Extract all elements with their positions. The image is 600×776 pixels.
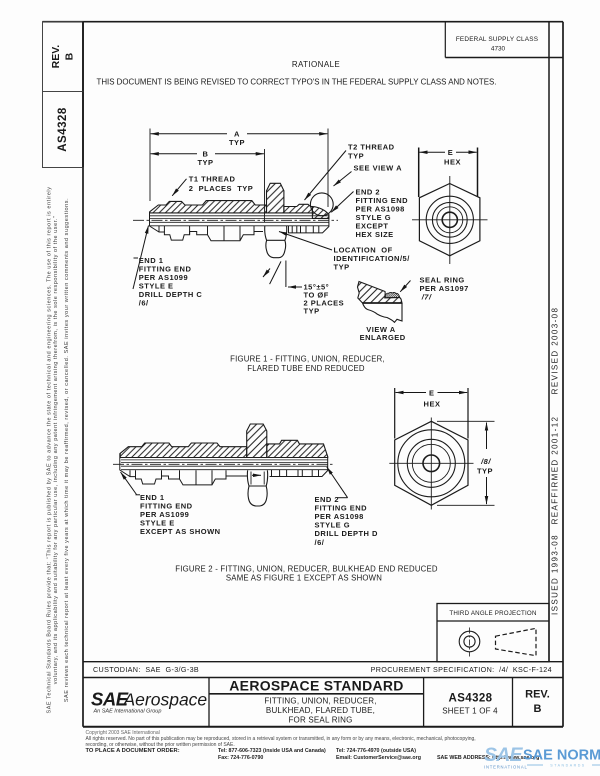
svg-text:REV.: REV.	[50, 45, 62, 69]
svg-text:Email: CustomerService@sae.org: Email: CustomerService@sae.org	[336, 755, 421, 761]
svg-text:ISSUED 1993-08: ISSUED 1993-08	[550, 534, 559, 615]
svg-text:FIGURE 1 - FITTING, UNION, RED: FIGURE 1 - FITTING, UNION, REDUCER,	[230, 354, 385, 363]
svg-text:TYP: TYP	[304, 307, 320, 316]
svg-text:/6/: /6/	[139, 298, 149, 307]
svg-text:2 PLACES TYP: 2 PLACES TYP	[189, 184, 254, 193]
svg-text:HEX: HEX	[424, 399, 441, 408]
svg-text:THIRD ANGLE PROJECTION: THIRD ANGLE PROJECTION	[449, 610, 536, 617]
svg-text:/6/: /6/	[315, 538, 325, 547]
svg-text:Copyright 2003 SAE Internation: Copyright 2003 SAE International	[86, 730, 160, 736]
svg-text:SHEET 1 OF 4: SHEET 1 OF 4	[442, 707, 498, 716]
svg-text:E: E	[448, 148, 454, 157]
svg-text:EXCEPT AS SHOWN: EXCEPT AS SHOWN	[140, 527, 221, 536]
svg-text:/7/: /7/	[421, 292, 432, 301]
svg-text:An SAE International Group: An SAE International Group	[93, 708, 162, 714]
svg-text:HEX SIZE: HEX SIZE	[356, 230, 394, 239]
svg-text:Fax: 724-776-0790: Fax: 724-776-0790	[218, 755, 263, 761]
svg-text:TYP: TYP	[334, 263, 350, 272]
svg-text:FITTING, UNION, REDUCER,: FITTING, UNION, REDUCER,	[264, 697, 376, 706]
svg-text:SAE NORM: SAE NORM	[523, 748, 600, 764]
svg-text:SAME AS FIGURE 1 EXCEPT AS SHO: SAME AS FIGURE 1 EXCEPT AS SHOWN	[226, 574, 382, 583]
svg-text:recording, or otherwise, witho: recording, or otherwise, without the pri…	[86, 742, 235, 748]
svg-text:SAE reviews each technical rep: SAE reviews each technical report at lea…	[64, 198, 70, 702]
svg-text:RATIONALE: RATIONALE	[292, 60, 340, 69]
svg-text:REV.: REV.	[525, 689, 550, 701]
svg-text:CUSTODIAN: SAE G-3/G-3B: CUSTODIAN: SAE G-3/G-3B	[93, 665, 199, 674]
svg-text:FOR SEAL RING: FOR SEAL RING	[288, 716, 352, 725]
svg-text:REAFFIRMED 2001-12: REAFFIRMED 2001-12	[550, 416, 559, 525]
svg-text:TYP: TYP	[477, 467, 493, 476]
svg-text:B: B	[534, 703, 542, 715]
svg-text:ENLARGED: ENLARGED	[360, 333, 406, 342]
svg-text:AS4328: AS4328	[57, 107, 69, 152]
svg-text:B: B	[64, 52, 76, 60]
svg-text:TYP: TYP	[229, 138, 245, 147]
svg-text:voluntary, and its applicabili: voluntary, and its applicability and sui…	[53, 216, 59, 684]
svg-text:Tel: 877-606-7323 (inside USA: Tel: 877-606-7323 (inside USA and Canada…	[218, 748, 326, 754]
svg-text:TO PLACE A DOCUMENT ORDER:: TO PLACE A DOCUMENT ORDER:	[86, 748, 180, 754]
svg-text:REVISED 2003-08: REVISED 2003-08	[550, 307, 559, 395]
svg-text:AEROSPACE STANDARD: AEROSPACE STANDARD	[229, 678, 403, 694]
svg-text:BULKHEAD, FLARED TUBE,: BULKHEAD, FLARED TUBE,	[266, 706, 375, 715]
svg-text:AS4328: AS4328	[449, 693, 493, 705]
svg-text:Tel: 724-776-4970 (outside USA: Tel: 724-776-4970 (outside USA)	[336, 748, 416, 754]
svg-text:TYP: TYP	[348, 151, 364, 160]
svg-text:THIS DOCUMENT IS BEING REVISED: THIS DOCUMENT IS BEING REVISED TO CORREC…	[97, 78, 497, 87]
svg-text:FLARED TUBE END REDUCED: FLARED TUBE END REDUCED	[247, 364, 365, 373]
svg-text:SAE Technical Standards Board: SAE Technical Standards Board Rules prov…	[46, 187, 52, 714]
svg-text:SEE VIEW A: SEE VIEW A	[354, 163, 403, 172]
svg-text:T2 THREAD: T2 THREAD	[348, 142, 395, 151]
svg-text:FIGURE 2 - FITTING, UNION, RED: FIGURE 2 - FITTING, UNION, REDUCER, BULK…	[175, 564, 438, 573]
svg-text:T1 THREAD: T1 THREAD	[189, 174, 236, 183]
svg-text:PROCUREMENT SPECIFICATION: /4: PROCUREMENT SPECIFICATION: /4/ KSC-F-124	[371, 665, 552, 674]
svg-text:Aerospace: Aerospace	[123, 690, 208, 710]
svg-text:FEDERAL SUPPLY CLASS: FEDERAL SUPPLY CLASS	[456, 36, 538, 43]
svg-text:STANDARDS: STANDARDS	[550, 764, 585, 768]
svg-text:/8/: /8/	[480, 457, 491, 466]
svg-text:TYP: TYP	[197, 158, 213, 167]
svg-text:HEX: HEX	[444, 157, 461, 166]
svg-text:4730: 4730	[491, 46, 506, 53]
svg-text:INTERNATIONAL: INTERNATIONAL	[484, 765, 528, 770]
svg-text:E: E	[429, 388, 435, 397]
svg-text:SAE: SAE	[484, 744, 523, 766]
